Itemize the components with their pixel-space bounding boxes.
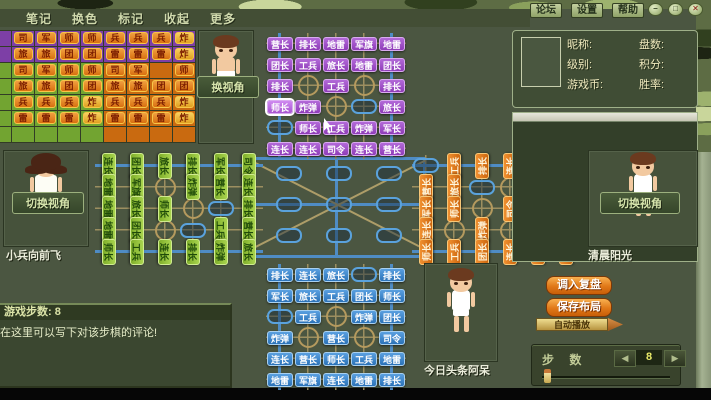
tracker-cell: 师 <box>81 63 104 79</box>
board-piece[interactable]: 旅长 <box>323 58 349 72</box>
menu-item-5[interactable]: 更多 <box>210 10 236 27</box>
empty-slot <box>376 197 402 212</box>
tracker-piece: 兵 <box>129 96 148 108</box>
tracker-cell: 雷 <box>127 47 150 63</box>
board-piece[interactable]: 地雷 <box>267 373 293 387</box>
tracker-piece: 团 <box>60 80 79 92</box>
tracker-cell: 雷 <box>104 47 127 63</box>
empty-slot <box>180 223 206 238</box>
tracker-cell: 师 <box>58 63 81 79</box>
tracker-cell: 军 <box>35 31 58 47</box>
board-piece[interactable]: 师长 <box>158 196 172 222</box>
tracker-cell: 雷 <box>58 111 81 127</box>
tracker-cell: 旅 <box>35 79 58 95</box>
board-piece[interactable]: 地雷 <box>379 352 405 366</box>
menu-item-3[interactable]: 标记 <box>118 10 144 27</box>
tracker-piece: 兵 <box>14 96 33 108</box>
campsite-marker <box>354 327 375 348</box>
switch-view-button-left[interactable]: 切换视角 <box>12 192 84 214</box>
tracker-cell: 兵 <box>12 95 35 111</box>
empty-slot <box>276 197 302 212</box>
tracker-piece: 旅 <box>106 80 125 92</box>
tracker-cell: 雷 <box>150 47 173 63</box>
tracker-cell: 兵 <box>127 31 150 47</box>
empty-slot <box>267 309 293 324</box>
tracker-piece: 团 <box>83 48 102 60</box>
board-piece[interactable]: 师长 <box>419 239 433 265</box>
board-piece[interactable]: 连长 <box>267 142 293 156</box>
tracker-cell <box>0 79 12 95</box>
tracker-cell <box>81 127 104 143</box>
board-piece[interactable]: 营长 <box>379 142 405 156</box>
tracker-cell <box>12 127 35 143</box>
campsite-marker <box>444 220 465 241</box>
board-piece[interactable]: 工兵 <box>295 58 321 72</box>
tracker-piece: 司 <box>14 64 33 76</box>
board-piece[interactable]: 炸弹 <box>351 121 377 135</box>
tracker-cell: 师 <box>58 31 81 47</box>
board-piece[interactable]: 地雷 <box>379 37 405 51</box>
move-count-title: 游戏步数: 8 <box>0 305 230 320</box>
tracker-cell: 炸 <box>81 95 104 111</box>
campsite-marker <box>183 198 204 219</box>
tracker-piece: 雷 <box>106 48 125 60</box>
tracker-cell: 团 <box>150 79 173 95</box>
board-piece[interactable]: 师长 <box>447 196 461 222</box>
player-name-right: 清晨阳光 <box>588 247 632 263</box>
tracker-cell: 团 <box>81 79 104 95</box>
tracker-cell: 旅 <box>35 47 58 63</box>
board-piece[interactable]: 团长 <box>379 58 405 72</box>
captured-pieces-tracker: 司军师师兵兵兵炸旅旅团团雷雷雷炸司军师师司军师旅旅团团旅旅团团兵兵兵炸兵兵兵炸雷… <box>0 30 196 143</box>
board-piece[interactable]: 团长 <box>379 310 405 324</box>
menu-item-2[interactable]: 换色 <box>72 10 98 27</box>
step-prev-button[interactable]: ◀ <box>614 350 636 367</box>
tracker-cell: 师 <box>173 63 196 79</box>
campsite-marker <box>326 306 347 327</box>
tracker-piece: 兵 <box>106 32 125 44</box>
tracker-cell: 兵 <box>35 95 58 111</box>
tracker-piece: 炸 <box>175 112 194 124</box>
tracker-piece: 雷 <box>129 112 148 124</box>
tracker-cell <box>150 127 173 143</box>
window-controls: – □ ✕ <box>648 3 703 16</box>
tracker-piece: 炸 <box>175 32 194 44</box>
board-piece[interactable]: 连长 <box>351 142 377 156</box>
tracker-cell: 军 <box>35 63 58 79</box>
campsite-marker <box>155 177 176 198</box>
info-label: 级别: <box>567 56 603 72</box>
board-piece[interactable]: 团长 <box>475 239 489 265</box>
campsite-marker <box>354 75 375 96</box>
tracker-cell <box>58 127 81 143</box>
tracker-piece: 司 <box>14 32 33 44</box>
tracker-piece: 兵 <box>152 32 171 44</box>
info-labels-right: 盘数:积分:胜率: <box>639 36 664 92</box>
info-label: 游戏币: <box>567 76 603 92</box>
tracker-piece: 司 <box>106 64 125 76</box>
window-right-border <box>696 0 711 152</box>
bullet-tip-icon <box>608 318 623 331</box>
board-piece[interactable]: 炸弹 <box>267 331 293 345</box>
board-piece[interactable]: 师长 <box>295 121 321 135</box>
tracker-cell: 兵 <box>58 95 81 111</box>
titlebar-button-2[interactable]: 设置 <box>571 3 603 18</box>
campsite-marker <box>298 75 319 96</box>
tracker-piece: 兵 <box>106 96 125 108</box>
tracker-cell: 炸 <box>173 95 196 111</box>
tracker-cell: 旅 <box>127 79 150 95</box>
tracker-cell <box>0 63 12 79</box>
tracker-cell <box>0 47 12 63</box>
tracker-cell: 炸 <box>173 47 196 63</box>
switch-view-button-right[interactable]: 切换视角 <box>600 192 680 214</box>
tracker-piece: 团 <box>152 80 171 92</box>
comment-input[interactable]: 在这里可以写下对该步棋的评论! <box>0 320 230 344</box>
board-piece[interactable]: 炸弹 <box>351 310 377 324</box>
board-piece[interactable]: 司令 <box>379 331 405 345</box>
board-piece[interactable]: 营长 <box>323 331 349 345</box>
tracker-cell: 兵 <box>150 31 173 47</box>
tracker-piece: 炸 <box>175 96 194 108</box>
board-piece[interactable]: 排长 <box>186 239 200 265</box>
tracker-cell: 兵 <box>150 95 173 111</box>
board-piece[interactable]: 师长 <box>379 289 405 303</box>
board-piece[interactable]: 军旗 <box>351 37 377 51</box>
titlebar-buttons: 论坛设置帮助 <box>530 3 644 18</box>
tracker-cell: 炸 <box>173 111 196 127</box>
switch-view-button-top[interactable]: 换视角 <box>197 76 259 98</box>
board-piece[interactable]: 营长 <box>267 37 293 51</box>
window-right-frame <box>696 152 711 390</box>
step-panel: 步 数 ◀ 8 ▶ <box>531 344 681 386</box>
tracker-cell: 团 <box>58 47 81 63</box>
step-value: 8 <box>636 350 662 365</box>
autoplay-label: 自动播放 <box>536 318 608 331</box>
board-piece[interactable]: 师长 <box>102 239 116 265</box>
tracker-piece: 兵 <box>60 96 79 108</box>
tracker-piece: 雷 <box>106 112 125 124</box>
load-replay-button[interactable]: 调入复盘 <box>546 276 612 295</box>
board-piece[interactable]: 旅长 <box>158 153 172 179</box>
board-piece[interactable]: 地雷 <box>351 58 377 72</box>
tracker-cell: 兵 <box>104 31 127 47</box>
empty-slot <box>276 228 302 243</box>
board-piece[interactable]: 旅长 <box>379 100 405 114</box>
tracker-cell: 炸 <box>81 111 104 127</box>
tracker-piece: 兵 <box>152 96 171 108</box>
empty-slot <box>276 166 302 181</box>
board-piece[interactable]: 营长 <box>214 174 228 200</box>
empty-slot <box>469 180 495 195</box>
titlebar-button-1[interactable]: 论坛 <box>530 3 562 18</box>
board-piece[interactable]: 军长 <box>379 121 405 135</box>
board-piece[interactable]: 军长 <box>267 289 293 303</box>
tracker-cell <box>0 111 12 127</box>
board-arm-bottom: 排长连长旅长排长军长旅长工兵团长师长工兵炸弹团长炸弹营长司令连长营长师长工兵地雷… <box>266 264 406 390</box>
tracker-cell: 团 <box>58 79 81 95</box>
tracker-cell <box>35 127 58 143</box>
board-piece[interactable]: 工兵 <box>323 79 349 93</box>
titlebar-button-3[interactable]: 帮助 <box>612 3 644 18</box>
tracker-piece: 雷 <box>152 48 171 60</box>
board-piece[interactable]: 军旗 <box>295 373 321 387</box>
tracker-piece: 雷 <box>152 112 171 124</box>
tracker-cell: 团 <box>173 79 196 95</box>
board-piece[interactable]: 旅长 <box>295 289 321 303</box>
menu-item-1[interactable]: 笔记 <box>26 10 52 27</box>
tracker-cell <box>0 127 12 143</box>
tracker-cell <box>0 31 12 47</box>
tracker-piece: 师 <box>83 64 102 76</box>
tracker-cell: 雷 <box>35 111 58 127</box>
board-piece[interactable]: 排长 <box>379 373 405 387</box>
board-piece[interactable]: 工兵 <box>351 352 377 366</box>
tracker-piece: 军 <box>37 32 56 44</box>
tracker-piece: 雷 <box>14 112 33 124</box>
app-window: 笔记换色标记收起更多 论坛设置帮助 – □ ✕ 司军师师兵兵兵炸旅旅团团雷雷雷炸… <box>0 0 711 400</box>
info-label: 盘数: <box>639 36 664 52</box>
empty-slot <box>326 228 352 243</box>
info-label: 昵称: <box>567 36 603 52</box>
step-next-button[interactable]: ▶ <box>664 350 686 367</box>
empty-slot <box>351 99 377 114</box>
empty-slot <box>413 158 439 173</box>
board-piece[interactable]: 连长 <box>267 352 293 366</box>
tracker-piece: 旅 <box>14 48 33 60</box>
board-piece[interactable]: 排长 <box>295 37 321 51</box>
tracker-cell: 司 <box>12 63 35 79</box>
tracker-piece: 炸 <box>83 96 102 108</box>
board-arm-top: 营长排长地雷军旗地雷团长工兵旅长地雷团长排长工兵排长师长炸弹旅长师长工兵炸弹军长… <box>266 33 406 159</box>
tracker-piece: 师 <box>83 32 102 44</box>
tracker-piece: 团 <box>83 80 102 92</box>
tracker-piece: 炸 <box>175 48 194 60</box>
empty-slot <box>376 166 402 181</box>
tracker-cell: 兵 <box>127 95 150 111</box>
tracker-piece: 雷 <box>60 112 79 124</box>
step-slider-track[interactable] <box>542 376 670 379</box>
board-piece[interactable]: 连长 <box>295 268 321 282</box>
tracker-cell: 司 <box>104 63 127 79</box>
tracker-cell <box>0 95 12 111</box>
tracker-piece: 团 <box>175 80 194 92</box>
tracker-piece: 旅 <box>129 80 148 92</box>
tracker-piece: 炸 <box>83 112 102 124</box>
board-piece[interactable]: 师长 <box>267 100 293 114</box>
campsite-marker <box>298 327 319 348</box>
player-info-panel: 昵称:级别:游戏币: 盘数:积分:胜率: <box>512 30 698 108</box>
board-piece[interactable]: 炸弹 <box>186 174 200 200</box>
tracker-piece: 师 <box>60 64 79 76</box>
tracker-piece: 师 <box>175 64 194 76</box>
tracker-cell: 旅 <box>12 79 35 95</box>
board-piece[interactable]: 工兵 <box>295 310 321 324</box>
board-piece[interactable]: 工兵 <box>323 289 349 303</box>
maximize-button[interactable]: □ <box>668 3 683 16</box>
step-slider-thumb[interactable] <box>544 369 551 383</box>
tracker-cell: 炸 <box>173 31 196 47</box>
board-center <box>264 158 414 251</box>
empty-slot <box>326 197 352 212</box>
tracker-piece: 团 <box>60 48 79 60</box>
step-label: 步 数 <box>542 351 587 368</box>
player-panel-bottom <box>424 263 498 362</box>
tracker-cell: 旅 <box>104 79 127 95</box>
tracker-piece: 兵 <box>37 96 56 108</box>
board-piece[interactable]: 团长 <box>267 58 293 72</box>
close-button[interactable]: ✕ <box>688 3 703 16</box>
info-label: 积分: <box>639 56 664 72</box>
tracker-piece: 军 <box>129 64 148 76</box>
tracker-piece: 师 <box>60 32 79 44</box>
tracker-cell <box>150 63 173 79</box>
tracker-cell: 军 <box>127 63 150 79</box>
campsite-marker <box>155 220 176 241</box>
empty-slot <box>326 166 352 181</box>
board-piece[interactable]: 工兵 <box>130 239 144 265</box>
tracker-cell: 雷 <box>150 111 173 127</box>
board-piece[interactable]: 师长 <box>323 352 349 366</box>
autoplay-button[interactable]: 自动播放 <box>536 318 623 331</box>
board-piece[interactable]: 旅长 <box>323 268 349 282</box>
board-piece[interactable]: 连长 <box>158 239 172 265</box>
chat-log-header <box>513 113 697 122</box>
player-name-left: 小兵向前飞 <box>6 247 61 263</box>
tracker-cell: 师 <box>81 31 104 47</box>
tracker-piece: 雷 <box>129 48 148 60</box>
tracker-cell <box>104 127 127 143</box>
board-piece[interactable]: 连长 <box>323 373 349 387</box>
board-piece[interactable]: 司令 <box>323 142 349 156</box>
tracker-piece: 雷 <box>37 112 56 124</box>
board-piece[interactable]: 地雷 <box>351 373 377 387</box>
board-arm-left: 连长团长旅长排长军长司令地雷军旗炸弹营长连长地雷旅长师长排长地雷团长工兵营长师长… <box>95 155 263 263</box>
tracker-piece: 旅 <box>37 80 56 92</box>
tracker-cell: 团 <box>81 47 104 63</box>
empty-slot <box>351 267 377 282</box>
empty-slot <box>208 201 234 216</box>
campsite-marker <box>326 96 347 117</box>
avatar-placeholder <box>521 37 561 87</box>
menu-bar: 笔记换色标记收起更多 <box>0 9 530 27</box>
board-piece[interactable]: 地雷 <box>323 37 349 51</box>
board-piece[interactable]: 工兵 <box>447 239 461 265</box>
save-layout-button[interactable]: 保存布局 <box>546 298 612 317</box>
tracker-cell <box>173 127 196 143</box>
board-piece[interactable]: 旅长 <box>242 239 256 265</box>
tracker-cell: 雷 <box>12 111 35 127</box>
board-piece[interactable]: 团长 <box>351 289 377 303</box>
board-piece[interactable]: 炸弹 <box>214 239 228 265</box>
tracker-cell: 雷 <box>127 111 150 127</box>
board-piece[interactable]: 排长 <box>475 153 489 179</box>
board-piece[interactable]: 排长 <box>379 79 405 93</box>
board-piece[interactable]: 排长 <box>267 79 293 93</box>
tracker-cell: 雷 <box>104 111 127 127</box>
board-piece[interactable]: 营长 <box>295 352 321 366</box>
menu-item-4[interactable]: 收起 <box>164 10 190 27</box>
tracker-cell <box>127 127 150 143</box>
board-piece[interactable]: 排长 <box>379 268 405 282</box>
info-label: 胜率: <box>639 76 664 92</box>
tracker-cell: 兵 <box>104 95 127 111</box>
tracker-piece: 兵 <box>129 32 148 44</box>
empty-slot <box>376 228 402 243</box>
tracker-piece: 军 <box>37 64 56 76</box>
tracker-piece: 旅 <box>37 48 56 60</box>
player-name-bottom: 今日头条阿呆 <box>424 362 490 378</box>
board-piece[interactable]: 炸弹 <box>295 100 321 114</box>
minimize-button[interactable]: – <box>648 3 663 16</box>
board-piece[interactable]: 连长 <box>295 142 321 156</box>
comment-panel: 游戏步数: 8 在这里可以写下对该步棋的评论! <box>0 303 232 388</box>
tracker-piece: 旅 <box>14 80 33 92</box>
tracker-cell: 司 <box>12 31 35 47</box>
board-piece[interactable]: 排长 <box>267 268 293 282</box>
empty-slot <box>267 120 293 135</box>
tracker-cell: 旅 <box>12 47 35 63</box>
avatar <box>439 272 483 332</box>
info-labels-left: 昵称:级别:游戏币: <box>567 36 603 92</box>
